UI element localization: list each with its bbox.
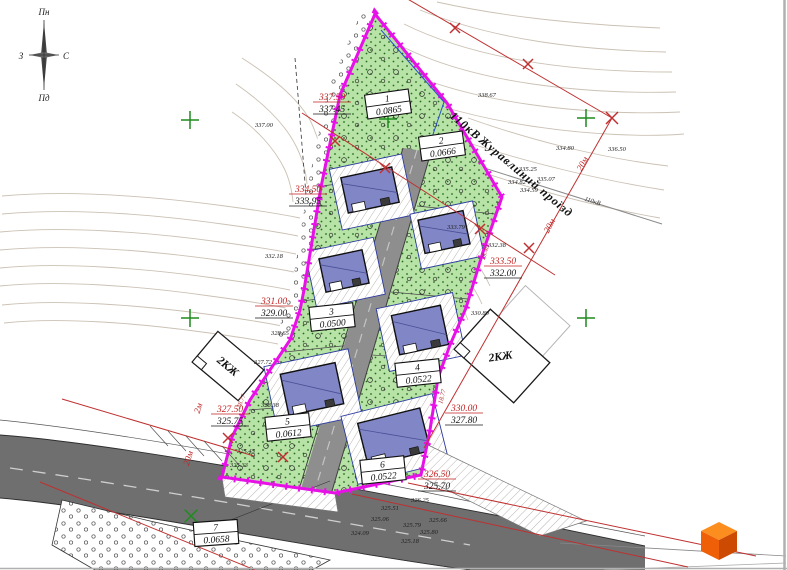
site-plan-page: 2КЖ 2КЖ [0,0,787,570]
powerline-small-label: 110кВ [584,196,602,207]
svg-text:325.33: 325.33 [229,462,249,469]
svg-text:335.25: 335.25 [518,166,538,173]
svg-text:327.80: 327.80 [450,416,477,426]
svg-text:329.00: 329.00 [260,309,287,319]
svg-text:325.66: 325.66 [428,517,448,524]
svg-text:328.38: 328.38 [260,402,280,409]
compass-rose: Пн Пд З С [19,7,70,103]
svg-text:325.06: 325.06 [370,516,390,523]
svg-text:330.80: 330.80 [470,310,490,317]
svg-text:325.45: 325.45 [236,448,256,455]
svg-text:328.65: 328.65 [270,330,290,337]
svg-text:334.59: 334.59 [519,187,539,194]
svg-text:333.79: 333.79 [446,224,466,231]
svg-text:333.95: 333.95 [294,197,321,207]
svg-text:331.00: 331.00 [260,297,287,307]
plot-label-7: 7 0.0658 [193,519,239,547]
svg-text:332.38: 332.38 [487,242,507,249]
svg-text:333.50: 333.50 [489,257,516,267]
plot-label-3: 3 0.0500 [309,303,355,332]
svg-text:0.0658: 0.0658 [203,535,230,547]
svg-text:337.50: 337.50 [318,93,345,103]
svg-text:332.18: 332.18 [264,253,284,260]
svg-text:325.70: 325.70 [423,482,450,492]
svg-text:334.50: 334.50 [294,185,321,195]
svg-text:332.00: 332.00 [489,269,516,279]
svg-text:337.45: 337.45 [318,105,345,115]
svg-text:327.72: 327.72 [253,359,273,366]
svg-text:325.80: 325.80 [419,529,439,536]
svg-text:335.07: 335.07 [536,176,556,183]
svg-text:2м: 2м [192,401,205,414]
svg-text:325.51: 325.51 [380,505,399,512]
svg-text:325.79: 325.79 [402,522,422,529]
svg-text:337.00: 337.00 [254,122,274,129]
compass-west: З [19,51,24,61]
level-mark-5: 333.50 332.00 [484,257,522,279]
svg-text:326.50: 326.50 [423,470,450,480]
svg-text:20м: 20м [574,155,590,173]
svg-text:325.75: 325.75 [216,417,243,427]
svg-text:327.50: 327.50 [216,405,243,415]
svg-text:334.80: 334.80 [555,145,575,152]
svg-text:325.18: 325.18 [400,538,420,545]
compass-north: Пн [38,7,50,17]
site-plan-drawing: 2КЖ 2КЖ [0,0,787,570]
compass-east: С [63,51,70,61]
svg-text:336.50: 336.50 [607,146,627,153]
plot-label-5: 5 0.0612 [265,413,311,442]
svg-text:338.67: 338.67 [477,92,497,99]
logo-cube-icon [701,522,737,560]
plot-label-6: 6 0.0522 [360,456,406,485]
svg-text:326.25: 326.25 [410,497,430,504]
svg-text:334.82: 334.82 [507,179,527,186]
svg-text:324.09: 324.09 [350,530,370,537]
compass-south: Пд [37,93,49,103]
level-mark-6: 330.00 327.80 [445,404,483,426]
svg-text:18.77: 18.77 [437,388,448,405]
svg-text:20м: 20м [541,217,557,235]
svg-text:330.00: 330.00 [450,404,477,414]
plot-label-4: 4 0.0522 [395,359,441,388]
